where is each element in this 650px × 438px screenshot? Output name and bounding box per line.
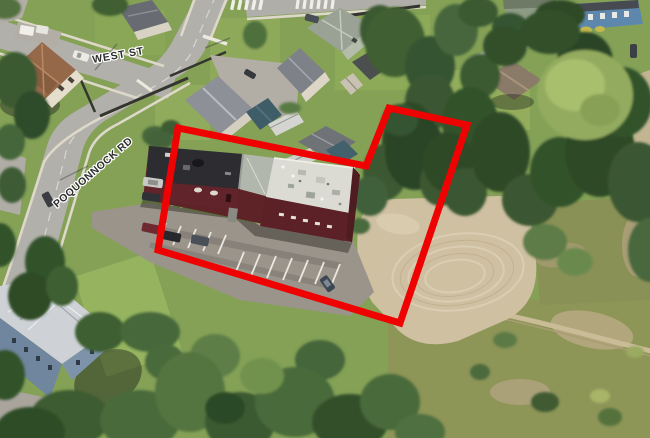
satellite-scene: WEST ST POQUONNOCK RD [0, 0, 650, 438]
car-topright [630, 44, 637, 58]
aerial-map: WEST ST POQUONNOCK RD [0, 0, 650, 438]
